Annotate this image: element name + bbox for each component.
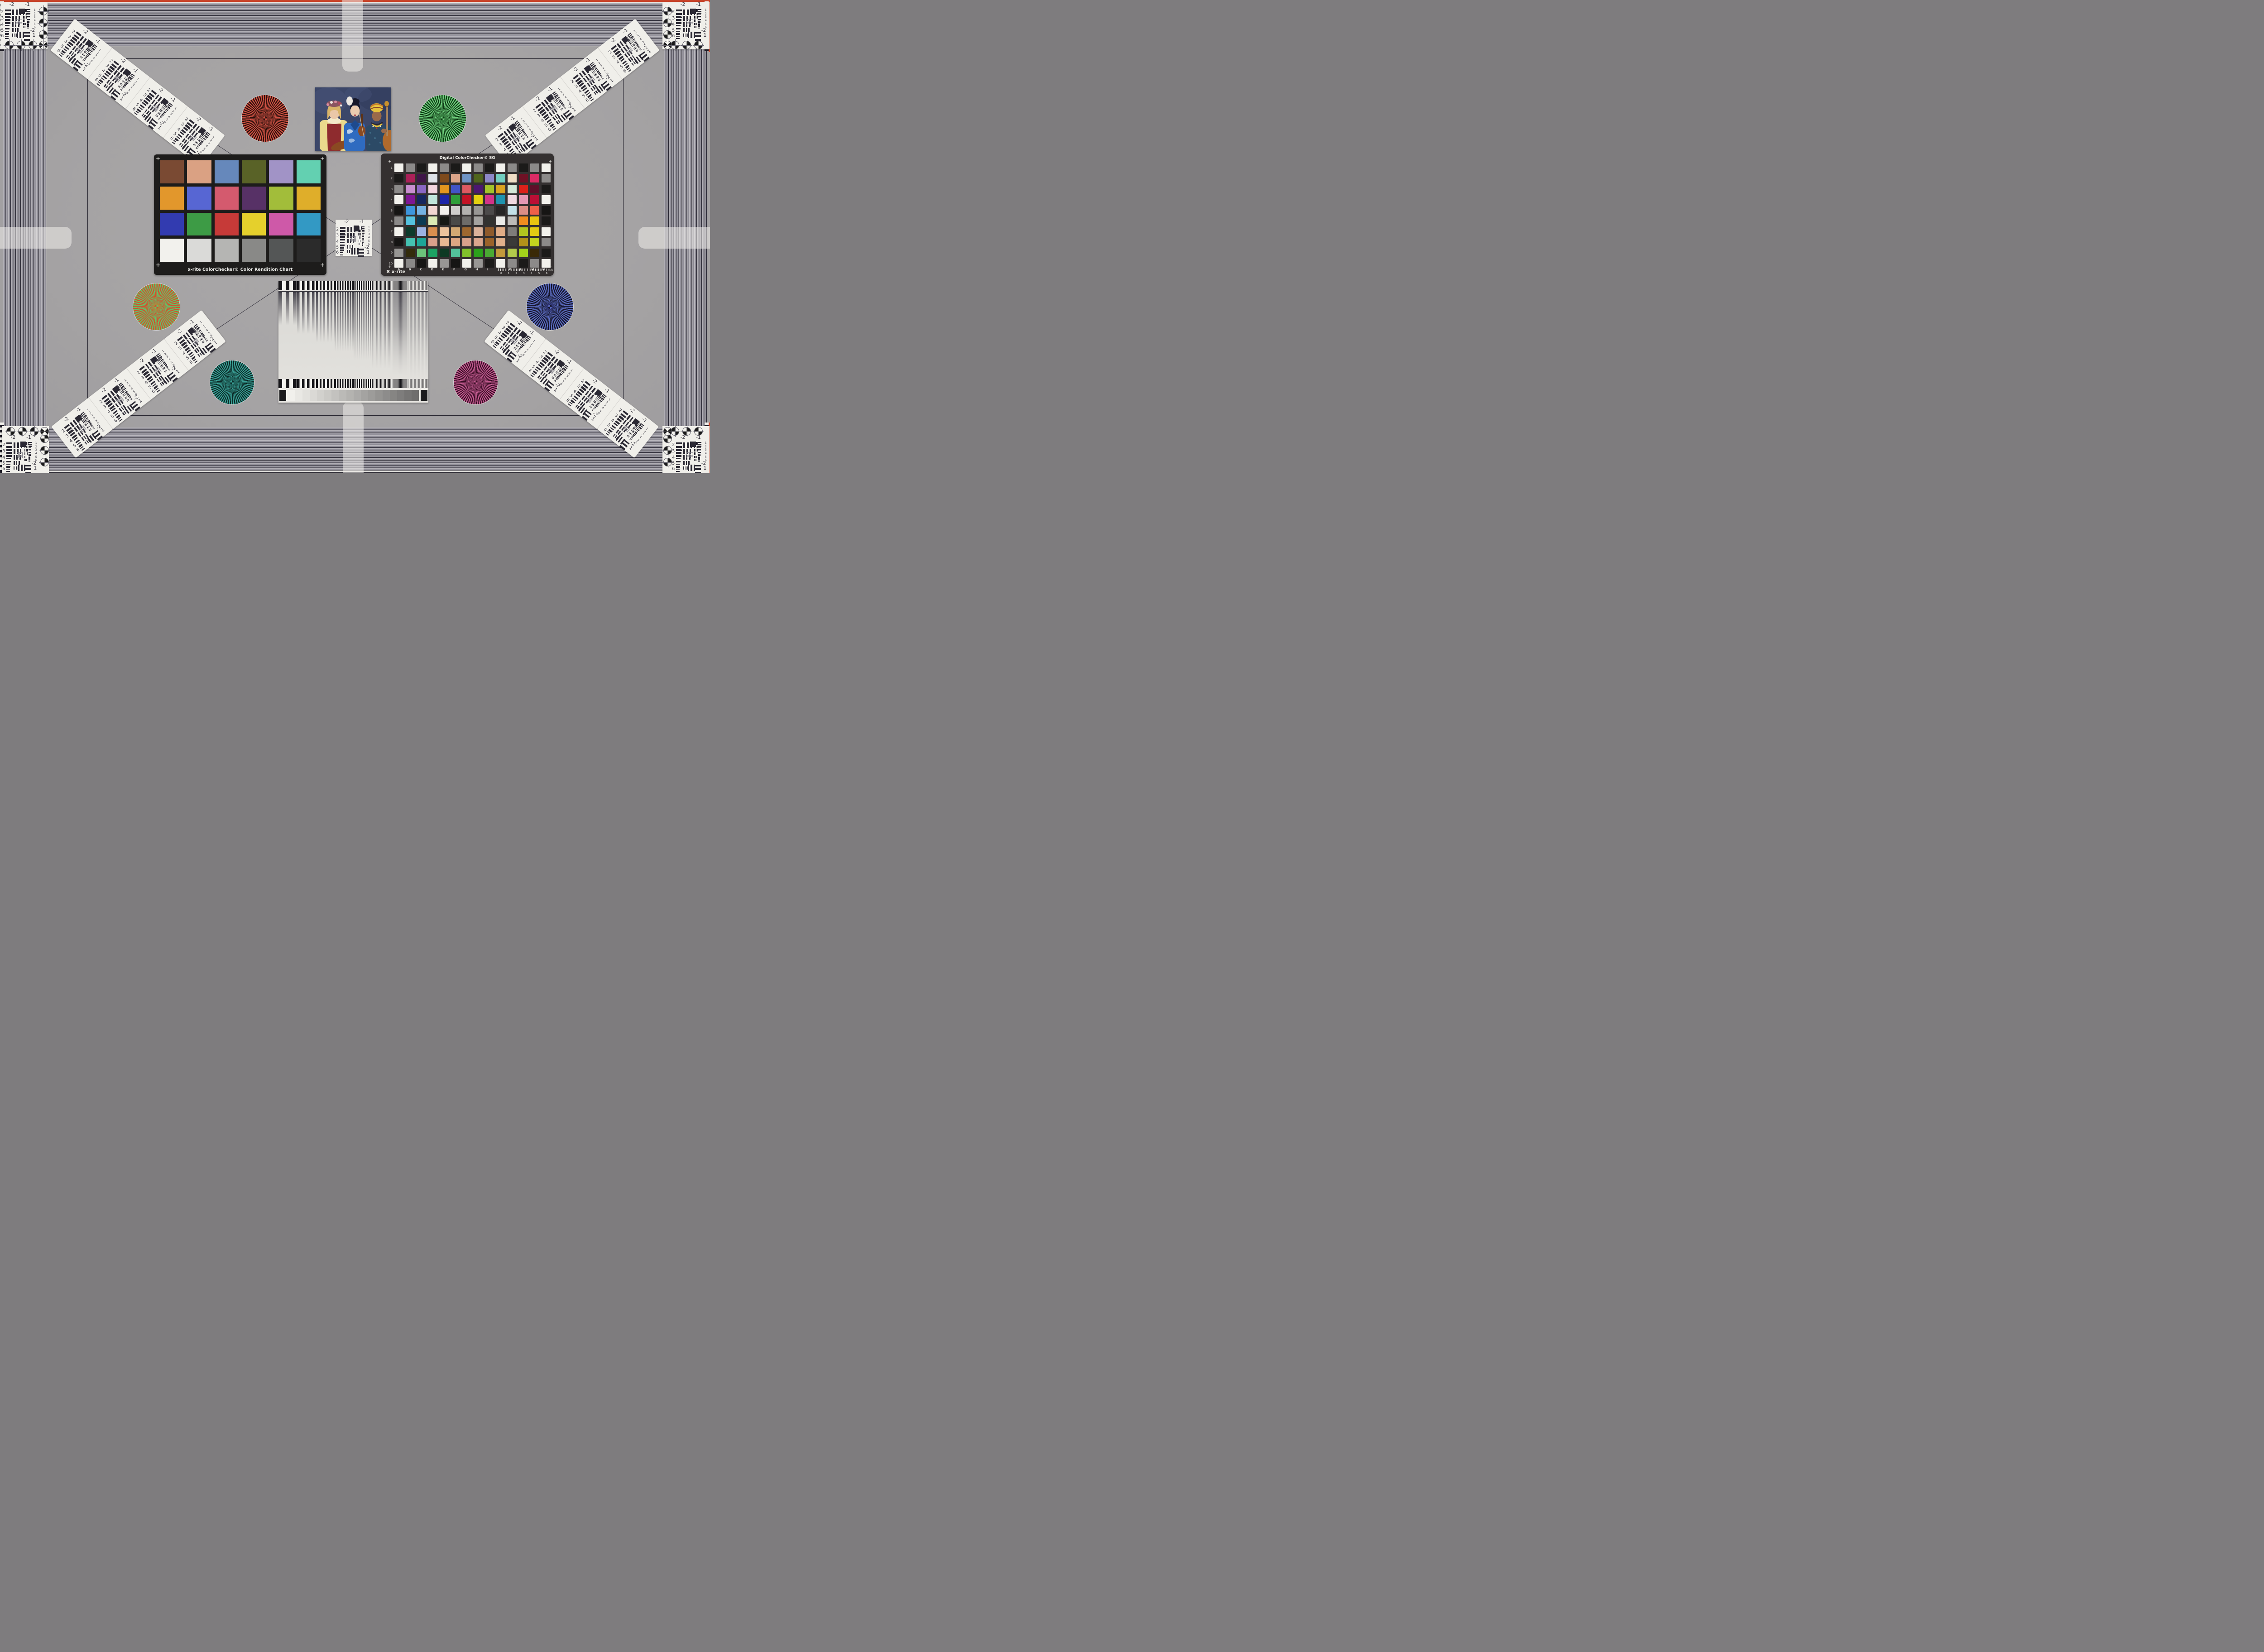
corner-target-bl-usaf-hbars — [29, 452, 31, 453]
corner-target-tr-usaf-hbars — [698, 28, 700, 28]
corner-target-tl-usaf-hbars — [5, 34, 9, 34]
corner-target-br-usaf-vbars — [694, 446, 695, 448]
sg-patch — [519, 259, 528, 268]
center-usaf-vbars — [359, 240, 359, 242]
sg-patch — [508, 206, 517, 215]
corner-target-tr-usaf-hbars — [676, 28, 680, 29]
corner-target-br: -2-123456123456-21 — [662, 426, 710, 473]
sg-patch — [496, 216, 505, 225]
ramp-step — [339, 390, 346, 401]
res-strip-tr-usaf-0-rownum: 2 — [495, 138, 500, 143]
center-usaf-corner-1: 1 — [367, 250, 370, 255]
center-usaf-rightnum: 1 — [368, 226, 370, 229]
sg-patch — [485, 249, 494, 257]
ramp-step — [295, 390, 302, 401]
res-strip-tr-usaf-3-hbars — [640, 49, 642, 50]
corner-target-bl-usaf-vbars — [26, 456, 26, 458]
corner-target-tl-usaf-rownum: 3 — [1, 16, 4, 20]
corner-target-br-roundel-h1-crosshair-v — [687, 426, 687, 437]
corner-target-br-usaf-vbars — [695, 459, 696, 461]
res-strip-tl-usaf-3-vbars — [194, 145, 196, 147]
sg-row-label: 3 — [384, 187, 393, 191]
ramp-steps — [288, 390, 419, 401]
res-strip-tl-usaf-2-vbars — [157, 115, 158, 117]
center-usaf-hbars — [358, 249, 364, 250]
center-resolution-target: -2-123456123456-21 — [336, 220, 372, 256]
corner-target-bl-usaf-hbars — [6, 461, 10, 462]
ramp-step — [346, 390, 354, 401]
corner-target-br-usaf-hbars — [698, 456, 700, 456]
corner-target-tr-usaf-rightnum: 3 — [705, 16, 707, 19]
center-usaf-hbars — [362, 231, 365, 232]
corner-target-tr-usaf-vbars — [696, 26, 696, 28]
center-usaf-rownum: 2 — [336, 227, 339, 231]
corner-target-br-usaf-vbars — [694, 456, 695, 458]
sg-patch — [474, 174, 483, 182]
sg-patch — [440, 249, 449, 257]
corner-target-tr-usaf-hbars — [698, 18, 701, 19]
res-strip-tr-usaf-3-rownum: 4 — [616, 60, 621, 65]
sg-ruler-number: 4 — [531, 272, 532, 275]
corner-target-tr-usaf-vbars — [686, 34, 686, 37]
cc-patch — [269, 160, 293, 183]
ramp-step — [404, 390, 412, 401]
center-usaf-vbars — [358, 230, 359, 232]
center-usaf-rightnum: 2 — [368, 230, 370, 232]
sg-corner-mark-tl: + — [388, 160, 392, 164]
sg-corner-mark-bl: + — [388, 265, 392, 269]
center-usaf-hbars — [358, 255, 364, 257]
corner-target-tl-usaf-vbars — [23, 23, 24, 25]
center-usaf: -2-123456123456-21 — [336, 220, 372, 256]
center-usaf-hbars — [362, 242, 364, 243]
sg-patch — [530, 163, 539, 172]
res-strip-bl-usaf-3-hbars — [206, 340, 208, 341]
chirp-top-segment — [316, 281, 335, 290]
corner-target-bl-usaf-vbars — [27, 452, 28, 455]
cc-patch — [160, 239, 184, 262]
corner-target-tl-usaf-vbars — [23, 19, 24, 22]
res-strip-br-usaf-0-rownum: 2 — [505, 321, 510, 326]
center-usaf-vbars — [359, 230, 360, 232]
sg-ruler-number: 1 — [508, 272, 510, 275]
corner-target-tr-roundel-v2 — [663, 30, 672, 39]
corner-target-tr-usaf-hbars — [676, 34, 680, 34]
center-usaf-hbars — [362, 230, 365, 231]
res-strip-br-usaf-2-rownum: 2 — [580, 379, 585, 384]
corner-target-bl-usaf: -2-123456123456-21 — [2, 435, 39, 472]
corner-target-br-usaf-vbars — [696, 456, 697, 458]
res-strip-tr-usaf-2-rownum: 2 — [570, 79, 575, 84]
camera-test-chart-scene: -2-123456123456-21-2-123456123456-21-2-1… — [0, 0, 710, 473]
corner-target-bl: -2-123456123456-21 — [2, 426, 49, 473]
corner-target-br-usaf-hbars — [695, 472, 701, 473]
cc-corner-mark-tl: + — [156, 156, 160, 161]
res-strip-br-usaf-2-label-m2: -2 — [591, 378, 598, 385]
corner-target-br-usaf-hbars — [698, 454, 700, 454]
corner-target-bl-usaf-hbars — [6, 466, 10, 467]
res-strip-br-usaf-1-label-m2: -2 — [553, 349, 560, 356]
res-strip-br-usaf-2-corner-1: 1 — [590, 417, 595, 423]
sg-patch — [542, 185, 551, 193]
corner-target-tl-usaf-hbars — [27, 28, 29, 28]
cc-patch — [297, 160, 321, 183]
corner-target-tr-usaf-mini-target — [686, 19, 693, 25]
sg-patch — [542, 174, 551, 182]
sg-patch — [428, 216, 437, 225]
res-strip-br-usaf-1-vbars — [553, 378, 554, 379]
corner-target-tr-usaf-vbars — [696, 23, 697, 25]
corner-target-tl-usaf-rightnum: 5 — [34, 23, 36, 26]
cc-patch — [187, 239, 211, 262]
corner-target-tr-usaf-rightnum: 5 — [705, 23, 707, 26]
corner-target-tl-roundel-h0 — [5, 41, 14, 49]
center-usaf-hbars — [362, 235, 365, 235]
res-strip-br-usaf-3-label-m1: -1 — [641, 417, 648, 424]
ramp-step — [317, 390, 324, 401]
center-usaf-vbars — [347, 250, 348, 253]
chirp-top-segment — [372, 281, 391, 290]
center-usaf-label-m2: -2 — [344, 220, 349, 224]
corner-target-br-usaf-hbars — [695, 468, 701, 470]
res-strip-bl-usaf-1-hbars — [131, 399, 133, 400]
corner-target-tl-usaf-hbars — [5, 19, 10, 20]
center-usaf-vbars — [359, 236, 360, 239]
corner-target-tr-usaf-hbars — [676, 13, 682, 15]
res-strip-tl-usaf-3-vbars — [197, 142, 198, 144]
chirp-top-segment — [391, 281, 409, 290]
center-usaf-rownum: 3 — [336, 233, 339, 237]
corner-target-br-usaf-hbars — [698, 458, 700, 459]
sg-patch — [474, 227, 483, 236]
corner-target-tl-usaf-vbars — [15, 28, 16, 32]
center-usaf-rightnum: 3 — [368, 233, 370, 236]
corner-target-bl-usaf-hbars — [29, 458, 30, 459]
sg-patch — [462, 195, 471, 204]
sg-patch — [417, 259, 426, 268]
ramp-step — [412, 390, 419, 401]
res-strip-tl-usaf-2-vbars — [159, 113, 161, 115]
corner-target-tr-roundel-h1-crosshair-v — [687, 39, 687, 51]
corner-target-tr-usaf-hbars — [698, 29, 700, 29]
center-usaf-vbars — [354, 248, 355, 255]
sweep-fade-area — [278, 292, 428, 379]
center-usaf-vbars — [351, 248, 353, 255]
res-strip-br-usaf-0-label-m1: -1 — [528, 329, 535, 336]
sg-patch — [451, 249, 460, 257]
cc-patch — [215, 213, 239, 236]
sg-patch — [394, 249, 403, 257]
corner-target-tr-usaf-vbars — [694, 16, 695, 19]
corner-target-br-usaf-vbars — [696, 459, 696, 461]
sg-patch — [519, 249, 528, 257]
corner-target-bl-usaf-vbars — [14, 442, 15, 448]
corner-target-tr-roundel-corner — [663, 41, 672, 49]
corner-target-tl-usaf-vbars — [24, 26, 24, 28]
res-strip-br-usaf-2-label-m1: -1 — [603, 388, 610, 394]
center-usaf-hbars — [340, 242, 345, 243]
sg-patch — [530, 259, 539, 268]
center-usaf-vbars — [350, 227, 352, 232]
sg-row-label: 1 — [384, 166, 393, 170]
corner-target-tr-usaf-hbars — [698, 25, 700, 26]
corner-target-br-usaf-vbars — [683, 442, 685, 448]
ramp-step — [375, 390, 383, 401]
corner-target-br-roundel-v1-crosshair-v — [668, 445, 668, 456]
center-usaf-hbars — [340, 230, 346, 232]
center-usaf-vbars — [360, 240, 360, 242]
corner-target-tr-roundel-h0-crosshair-v — [675, 39, 676, 51]
corner-target-br-usaf-vbars — [683, 461, 685, 465]
corner-target-bl-usaf-vbars — [26, 459, 27, 461]
sg-row-label: 7 — [384, 230, 393, 233]
sg-patch — [508, 185, 517, 193]
res-strip-bl-usaf-0-corner-1: 1 — [100, 427, 106, 433]
sg-patch — [417, 227, 426, 236]
corner-target-br-usaf-hbars — [676, 471, 680, 472]
res-strip-br-usaf-2-vbars — [590, 407, 592, 408]
corner-target-tr-usaf-vbars — [696, 13, 697, 15]
sg-patch — [496, 185, 505, 193]
corner-target-tl-usaf-hbars — [27, 16, 30, 17]
sg-patch — [406, 249, 415, 257]
sg-patch — [485, 227, 494, 236]
res-strip-tr-usaf-2-label-m1: -1 — [585, 57, 591, 64]
corner-target-br-roundel-v2 — [663, 458, 672, 466]
corner-target-tr-roundel-v1-crosshair-v — [668, 17, 668, 29]
corner-target-tl-roundel-h1 — [17, 41, 25, 49]
corner-target-tl-usaf-hbars — [27, 9, 30, 10]
sg-patch — [485, 195, 494, 204]
res-strip-tr-usaf-3-label-m2: -2 — [610, 38, 617, 44]
sg-patch — [530, 216, 539, 225]
corner-target-tl-usaf-rightnum: 4 — [34, 19, 36, 22]
center-usaf-hbars — [362, 238, 364, 238]
res-strip-tl-usaf-3-label-m1: -1 — [207, 126, 214, 133]
corner-target-bl-usaf-hbars — [29, 457, 30, 457]
corner-target-tr-usaf-hbars — [698, 9, 701, 10]
sg-patch — [394, 227, 403, 236]
ramp-step — [397, 390, 404, 401]
corner-target-bl-usaf-hbars — [6, 452, 12, 453]
sg-ruler-ticks — [500, 269, 547, 271]
corner-target-bl-roundel-v2-crosshair-v — [45, 456, 45, 468]
center-usaf-vbars — [347, 227, 349, 232]
sg-patch — [485, 163, 494, 172]
cc-caption: x-rite ColorChecker® Color Rendition Cha… — [154, 267, 326, 272]
sg-patch — [406, 259, 415, 268]
center-usaf-hbars — [362, 226, 365, 227]
sg-patch — [406, 206, 415, 215]
colorchecker-sg-chart: Digital ColorChecker® SG 12345678910 ABC… — [381, 154, 554, 276]
res-strip-tr-usaf-3-hbars — [644, 57, 650, 62]
center-usaf-hbars — [340, 250, 344, 251]
center-usaf-vbars — [360, 226, 360, 230]
cc-corner-mark-tr: + — [320, 156, 325, 161]
corner-target-tr-usaf-hbars — [676, 38, 680, 39]
sg-patch — [542, 238, 551, 246]
center-usaf-vbars — [358, 243, 358, 245]
sg-patch — [428, 185, 437, 193]
corner-target-br-usaf-vbars — [686, 461, 687, 465]
corner-target-tl-usaf-hbars — [24, 39, 30, 41]
corner-target-bl-usaf-holder: -2-123456123456-21 — [2, 435, 39, 472]
corner-target-br-roundel-h2-crosshair-v — [699, 426, 699, 437]
sg-patch — [519, 195, 528, 204]
corner-target-bl-usaf-hbars — [6, 469, 10, 470]
corner-target-bl-usaf-vbars — [16, 466, 17, 470]
res-strip-tr-usaf-0-rownum: 4 — [503, 148, 508, 153]
sg-patch — [428, 195, 437, 204]
corner-target-br-usaf-hbars — [676, 442, 682, 444]
corner-target-bl-usaf-hbars — [29, 461, 30, 461]
cc-patch — [269, 239, 293, 262]
res-strip-tr-usaf-3-hbars — [628, 69, 632, 72]
res-strip-tr-usaf-0-label-m1: -1 — [509, 115, 516, 122]
sg-patch — [530, 238, 539, 246]
corner-target-bl-usaf-rownum: 5 — [2, 461, 5, 466]
corner-target-tr-usaf-corner-1: 1 — [704, 33, 707, 38]
sg-row-label: 6 — [384, 219, 393, 223]
corner-target-tr-usaf-vbars — [697, 19, 697, 22]
sg-patch — [394, 259, 403, 268]
corner-target-bl-usaf-vbars — [27, 456, 27, 458]
chirp-top-segment — [297, 281, 316, 290]
sg-patch — [462, 238, 471, 246]
teal-star-center-dot — [230, 380, 234, 384]
corner-target-br-usaf-hbars — [698, 459, 700, 460]
corner-target-bl-roundel-corner — [40, 427, 49, 436]
corner-target-tl-usaf-hbars — [27, 14, 30, 15]
ramp-step — [302, 390, 310, 401]
res-strip-tr-usaf-2-hbars — [590, 98, 594, 101]
sg-patch — [485, 185, 494, 193]
corner-target-br-usaf: -2-123456123456-21 — [672, 435, 709, 472]
sg-patch — [440, 206, 449, 215]
sg-patch — [474, 185, 483, 193]
corner-target-br-roundel-h2 — [694, 427, 703, 436]
sg-patch — [406, 216, 415, 225]
res-strip-tl-usaf-1-corner-1: 1 — [119, 96, 124, 102]
center-usaf-hbars — [340, 239, 345, 240]
corner-target-tr-usaf-hbars — [676, 22, 681, 24]
res-strip-bl-usaf-2-hbars — [168, 370, 170, 371]
corner-target-tr-usaf-vbars — [697, 16, 697, 19]
center-usaf-hbars — [340, 255, 344, 255]
corner-target-tr-usaf: -2-123456123456-21 — [672, 2, 709, 39]
corner-target-bl-usaf-hbars — [25, 468, 31, 470]
corner-target-tl-usaf-vbars — [12, 22, 14, 27]
corner-target-tl-usaf-rightnum: 3 — [34, 16, 36, 19]
corner-target-bl-roundel-h2-crosshair-v — [34, 426, 35, 437]
center-usaf-hbars — [340, 227, 346, 229]
corner-target-bl-usaf-vbars — [14, 455, 15, 460]
corner-target-tr-roundel-v1 — [663, 19, 672, 27]
blue-star-center-dot — [548, 305, 552, 309]
corner-target-tl-usaf-hbars — [27, 21, 29, 21]
center-usaf-hbars — [362, 240, 364, 240]
corner-target-bl-usaf-label-m2: -2 — [11, 435, 16, 440]
cc-patch — [242, 187, 266, 210]
corner-target-br-usaf-vbars — [697, 449, 697, 451]
sg-patch — [394, 185, 403, 193]
corner-target-br-roundel-v2-crosshair-v — [668, 456, 668, 468]
sg-row-label: 2 — [384, 177, 393, 180]
corner-target-tr-usaf-vbars — [683, 22, 685, 27]
center-usaf-vbars — [360, 233, 361, 236]
ramp-step — [390, 390, 397, 401]
res-strip-br-usaf-1-vbars — [555, 375, 557, 377]
corner-target-bl-usaf-vbars — [14, 461, 15, 465]
chirp-bottom-segment — [335, 379, 353, 388]
corner-target-bl-usaf-hbars — [6, 449, 12, 450]
center-usaf-vbars — [358, 236, 358, 239]
sg-patch — [394, 238, 403, 246]
sg-patch — [451, 259, 460, 268]
center-usaf-vbars — [358, 226, 359, 230]
musicians-portrait-photo — [315, 87, 391, 151]
sg-patch — [394, 206, 403, 215]
res-strip-tl-usaf-2-corner-1: 1 — [156, 125, 162, 131]
corner-target-br-usaf-rightnum: 2 — [705, 446, 707, 448]
sg-patch — [485, 238, 494, 246]
corner-target-tl-usaf-vbars — [12, 34, 13, 37]
corner-target-bl-usaf-rightnum: 4 — [35, 452, 37, 455]
sg-patch — [530, 174, 539, 182]
corner-target-tl-usaf-holder: -2-123456123456-21 — [0, 2, 38, 39]
ramp-step — [288, 390, 295, 401]
corner-target-bl-roundel-v1 — [40, 446, 49, 455]
res-strip-bl-usaf-0-label-m1: -1 — [76, 407, 82, 413]
green-star — [419, 95, 466, 142]
corner-target-br-usaf-vbars — [687, 442, 689, 448]
sg-patch — [451, 185, 460, 193]
corner-target-bl-roundel-v2 — [40, 458, 49, 466]
sg-patch — [451, 206, 460, 215]
corner-target-tr-usaf-vbars — [683, 34, 684, 37]
res-strip-tl-usaf-0-label-m1: -1 — [94, 38, 101, 45]
corner-target-tr-usaf-vbars — [686, 28, 687, 32]
corner-target-tl-usaf-vbars — [26, 16, 26, 19]
corner-target-tl-usaf-vbars — [19, 32, 21, 38]
corner-target-br-usaf-hbars — [698, 457, 700, 457]
center-usaf-rightnum: 4 — [368, 236, 370, 239]
corner-target-tr-usaf-vbars — [683, 10, 685, 15]
corner-target-br-usaf-hbars — [698, 444, 701, 445]
chirp-top-segment — [335, 281, 353, 290]
corner-target-tl-usaf-hbars — [5, 31, 9, 32]
corner-target-br-usaf-rightnum: 4 — [705, 452, 707, 455]
res-strip-tr-usaf-1-hbars — [565, 107, 566, 109]
sg-col-label: J — [498, 268, 499, 271]
colorchecker-classic-chart: + + + + x-rite ColorChecker® Color Rendi… — [154, 154, 326, 275]
res-strip-br-usaf-1-rownum: 2 — [542, 350, 547, 355]
cc-patch — [187, 160, 211, 183]
sg-patch — [428, 227, 437, 236]
corner-target-br-roundel-corner-crosshair-v — [668, 426, 668, 437]
sg-patch — [451, 227, 460, 236]
corner-target-tr-usaf-vbars — [696, 19, 696, 22]
corner-target-bl-roundel-h1-crosshair-v — [23, 426, 23, 437]
sg-col-label: G — [465, 268, 467, 271]
sg-patch — [440, 174, 449, 182]
chirp-bottom-segment — [297, 379, 316, 388]
sg-patch-grid — [394, 163, 551, 268]
sg-col-label: F — [453, 268, 455, 271]
chirp-bottom-segment — [316, 379, 335, 388]
center-usaf-hbars — [362, 236, 364, 237]
sg-patch — [508, 174, 517, 182]
